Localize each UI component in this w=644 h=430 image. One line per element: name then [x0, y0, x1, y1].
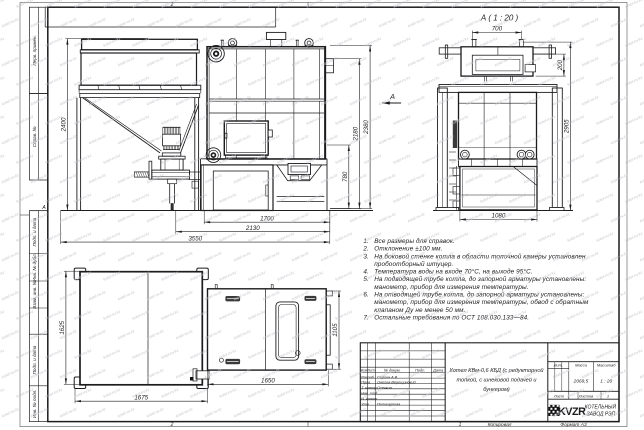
svg-text:1 : 20: 1 : 20 — [600, 378, 612, 384]
svg-text:2400: 2400 — [60, 117, 67, 132]
svg-text:А: А — [41, 205, 46, 211]
svg-text:2069,5: 2069,5 — [573, 378, 589, 384]
svg-text:Разраб.: Разраб. — [361, 375, 375, 379]
svg-text:клапаном Ду не менее 50 мм.: клапаном Ду не менее 50 мм. — [374, 307, 465, 314]
svg-text:2: 2 — [170, 422, 174, 428]
svg-text:Отклонение ±100 мм.: Отклонение ±100 мм. — [374, 246, 442, 253]
svg-text:Утв.: Утв. — [361, 402, 370, 406]
svg-text:Онегов-Верещинский: Онегов-Верещинский — [377, 381, 416, 385]
svg-text:Копировал: Копировал — [488, 422, 512, 428]
svg-text:2130: 2130 — [245, 225, 260, 232]
svg-text:Масса: Масса — [575, 363, 588, 368]
svg-text:Лист: Лист — [366, 368, 376, 372]
svg-text:1: 1 — [459, 422, 462, 428]
svg-text:Лист: Лист — [553, 394, 565, 399]
svg-text:Пров.: Пров. — [361, 381, 371, 385]
svg-text:Лит.: Лит. — [553, 363, 563, 368]
svg-text:Все размеры для справок.: Все размеры для справок. — [374, 237, 455, 245]
svg-text:780: 780 — [342, 171, 349, 182]
svg-text:Масштаб: Масштаб — [597, 363, 616, 368]
svg-text:Листов: Листов — [578, 394, 594, 399]
svg-text:пробоотборный штуцер.: пробоотборный штуцер. — [374, 260, 453, 268]
svg-text:Формат А3: Формат А3 — [560, 422, 587, 428]
svg-text:Поликарпова: Поликарпова — [377, 402, 400, 406]
